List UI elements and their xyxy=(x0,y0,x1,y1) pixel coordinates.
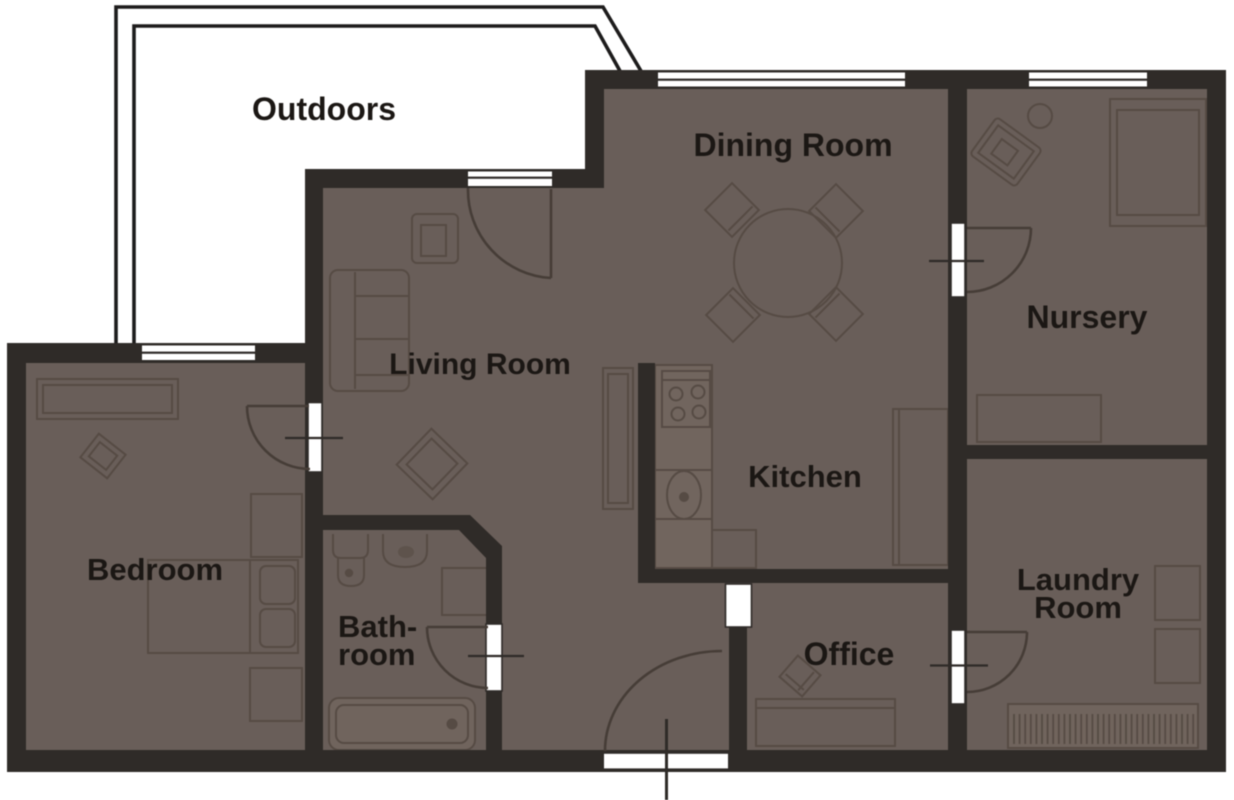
svg-text:Room: Room xyxy=(1034,590,1122,625)
svg-text:Office: Office xyxy=(804,636,895,672)
svg-text:Outdoors: Outdoors xyxy=(252,91,396,127)
svg-text:Dining Room: Dining Room xyxy=(693,127,892,163)
svg-text:Nursery: Nursery xyxy=(1027,299,1148,335)
svg-text:Bedroom: Bedroom xyxy=(87,552,223,587)
svg-text:Kitchen: Kitchen xyxy=(748,459,862,494)
svg-text:room: room xyxy=(338,637,416,672)
svg-text:Living Room: Living Room xyxy=(389,348,571,381)
